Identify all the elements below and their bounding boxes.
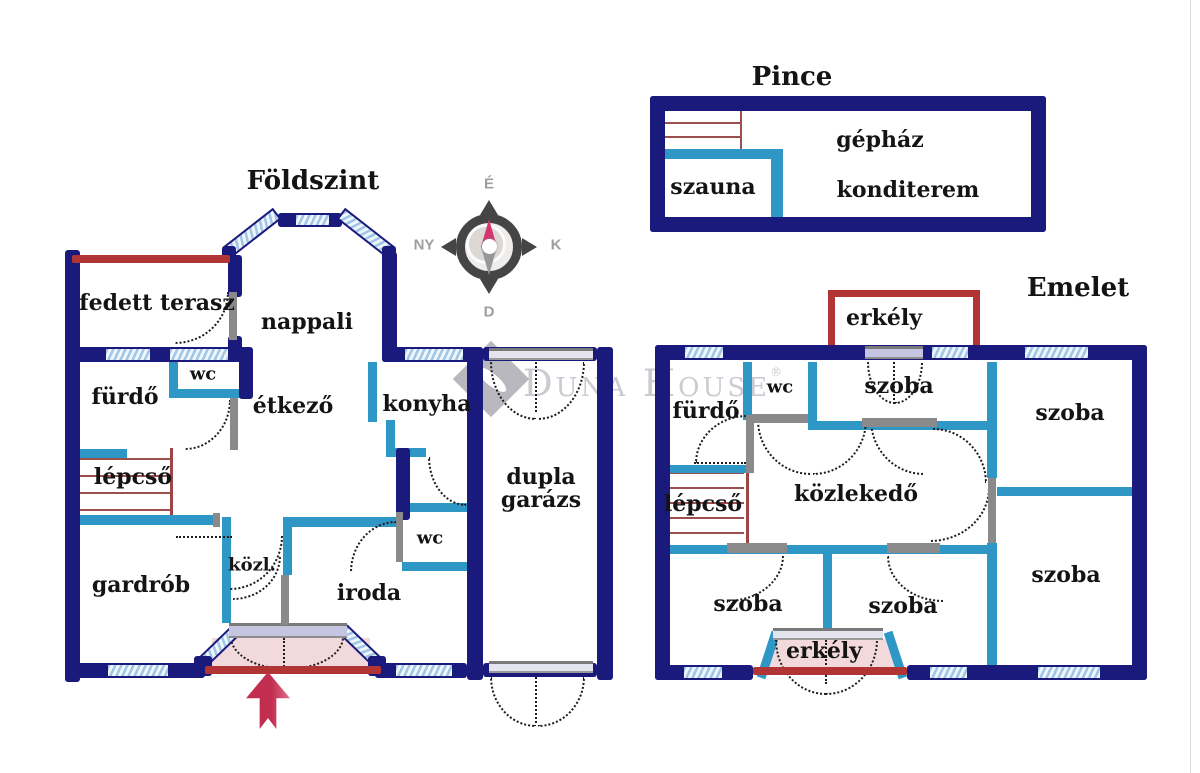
- garage-door-lintel: [489, 661, 593, 673]
- window: [296, 213, 329, 227]
- door-arc: [870, 420, 924, 475]
- wall: [997, 487, 1132, 496]
- room-label-wc-bottom: wc: [417, 528, 443, 549]
- compass-north-label: É: [484, 176, 494, 193]
- entrance-door-lintel: [229, 623, 347, 638]
- compass-west-label: NY: [414, 237, 435, 254]
- room-label-gym: konditerem: [837, 177, 980, 203]
- room-label-wardrobe: gardrób: [92, 572, 190, 598]
- door-jamb: [746, 415, 754, 473]
- door-arc: [185, 400, 231, 450]
- room-label-room-bottom-left: szoba: [713, 591, 782, 617]
- title-ground-floor: Földszint: [247, 166, 380, 196]
- wall: [987, 362, 997, 478]
- wall: [771, 149, 783, 218]
- wall: [1132, 345, 1147, 680]
- floor-plan-canvas: Földszint Pince Emelet Duna House® É NY …: [0, 0, 1200, 773]
- door-arc: [538, 362, 585, 420]
- door-arc: [350, 521, 396, 572]
- wall: [823, 554, 832, 630]
- door-arc: [490, 677, 536, 727]
- wall: [72, 449, 127, 458]
- wall: [1031, 96, 1046, 232]
- garage-door-lintel: [489, 348, 593, 360]
- room-label-balcony-top: erkély: [846, 305, 922, 331]
- wall: [650, 96, 1046, 111]
- image-edge-line: [1190, 0, 1191, 773]
- door-leaf-line: [535, 677, 537, 723]
- compass-tip-south: [480, 279, 498, 294]
- wall: [396, 448, 410, 520]
- wall: [662, 149, 783, 159]
- room-label-hallway-upper: közlekedő: [794, 481, 918, 507]
- room-label-office: iroda: [337, 580, 401, 606]
- wall: [65, 250, 80, 682]
- room-label-dining: étkező: [253, 393, 334, 419]
- door-lintel: [727, 543, 787, 553]
- door-jamb: [988, 478, 996, 543]
- compass-east-label: K: [551, 237, 562, 254]
- compass-tip-north: [480, 200, 498, 215]
- compass-south-label: D: [484, 304, 495, 321]
- room-label-living: nappali: [261, 309, 353, 335]
- room-label-balcony-bottom: erkély: [786, 638, 862, 664]
- window: [1025, 345, 1088, 360]
- wall: [743, 362, 752, 420]
- window: [170, 347, 228, 362]
- room-label-room-bottom-mid: szoba: [868, 593, 937, 619]
- door-leaf-line: [535, 362, 537, 412]
- door-arc: [538, 677, 585, 727]
- wall: [650, 96, 665, 232]
- wall: [65, 515, 213, 525]
- room-label-room-top: szoba: [864, 373, 933, 399]
- entrance-arrow-icon: [246, 672, 290, 729]
- door-arc: [930, 488, 990, 542]
- wall: [987, 543, 997, 665]
- window: [106, 347, 150, 362]
- door-leaf-line: [176, 536, 232, 538]
- window: [932, 345, 968, 360]
- wall: [662, 545, 997, 554]
- wall: [665, 465, 753, 473]
- title-upper-floor: Emelet: [1027, 273, 1129, 303]
- door-jamb: [281, 575, 289, 625]
- wall: [169, 389, 240, 398]
- door-lintel: [752, 414, 808, 423]
- window: [685, 345, 723, 360]
- compass-tip-east: [522, 238, 537, 256]
- window: [108, 663, 168, 678]
- door-lintel: [887, 543, 940, 553]
- window: [1038, 665, 1100, 680]
- room-label-terrace: fedett terasz: [79, 290, 235, 316]
- door-lintel: [862, 418, 937, 427]
- wall: [597, 347, 613, 680]
- room-label-sauna: szauna: [670, 174, 755, 200]
- compass-tip-west: [441, 238, 456, 256]
- window: [405, 347, 463, 362]
- stairs-edge-line: [746, 471, 749, 545]
- room-label-room-top-right: szoba: [1035, 400, 1104, 426]
- stairs-symbol: [662, 108, 742, 152]
- wall: [382, 252, 397, 362]
- room-label-bath: fürdő: [91, 384, 158, 410]
- room-label-stairs-upper: lépcső: [664, 491, 742, 517]
- window: [684, 665, 722, 680]
- compass-hub: [482, 239, 497, 254]
- room-label-room-bottom-right: szoba: [1031, 562, 1100, 588]
- entrance-threshold: [205, 666, 381, 674]
- terrace-open-wall: [72, 255, 230, 263]
- door-jamb: [213, 513, 220, 527]
- room-label-garage: dupla garázs: [486, 466, 596, 512]
- room-label-wc-top: wc: [190, 364, 216, 385]
- room-label-kitchen: konyha: [383, 391, 472, 417]
- door-arc: [813, 420, 867, 475]
- room-label-hallway: közl.: [228, 555, 276, 576]
- door-jamb: [396, 512, 403, 562]
- wall: [239, 347, 253, 399]
- wall: [650, 217, 1046, 232]
- room-label-bath-upper: fürdő: [672, 398, 739, 424]
- door-arc: [757, 420, 811, 475]
- balcony-open-wall: [753, 667, 907, 675]
- room-label-stairs: lépcső: [94, 464, 172, 490]
- room-label-plant-room: gépház: [836, 127, 924, 153]
- room-label-wc-upper: wc: [767, 377, 793, 398]
- door-arc: [933, 428, 987, 483]
- window: [930, 665, 967, 680]
- wall: [402, 562, 467, 571]
- title-basement: Pince: [752, 62, 833, 92]
- window: [396, 663, 452, 678]
- door-arc: [428, 457, 466, 506]
- wall: [368, 362, 377, 422]
- balcony-door-lintel: [865, 346, 923, 359]
- door-jamb: [230, 398, 238, 450]
- door-arc: [490, 362, 536, 420]
